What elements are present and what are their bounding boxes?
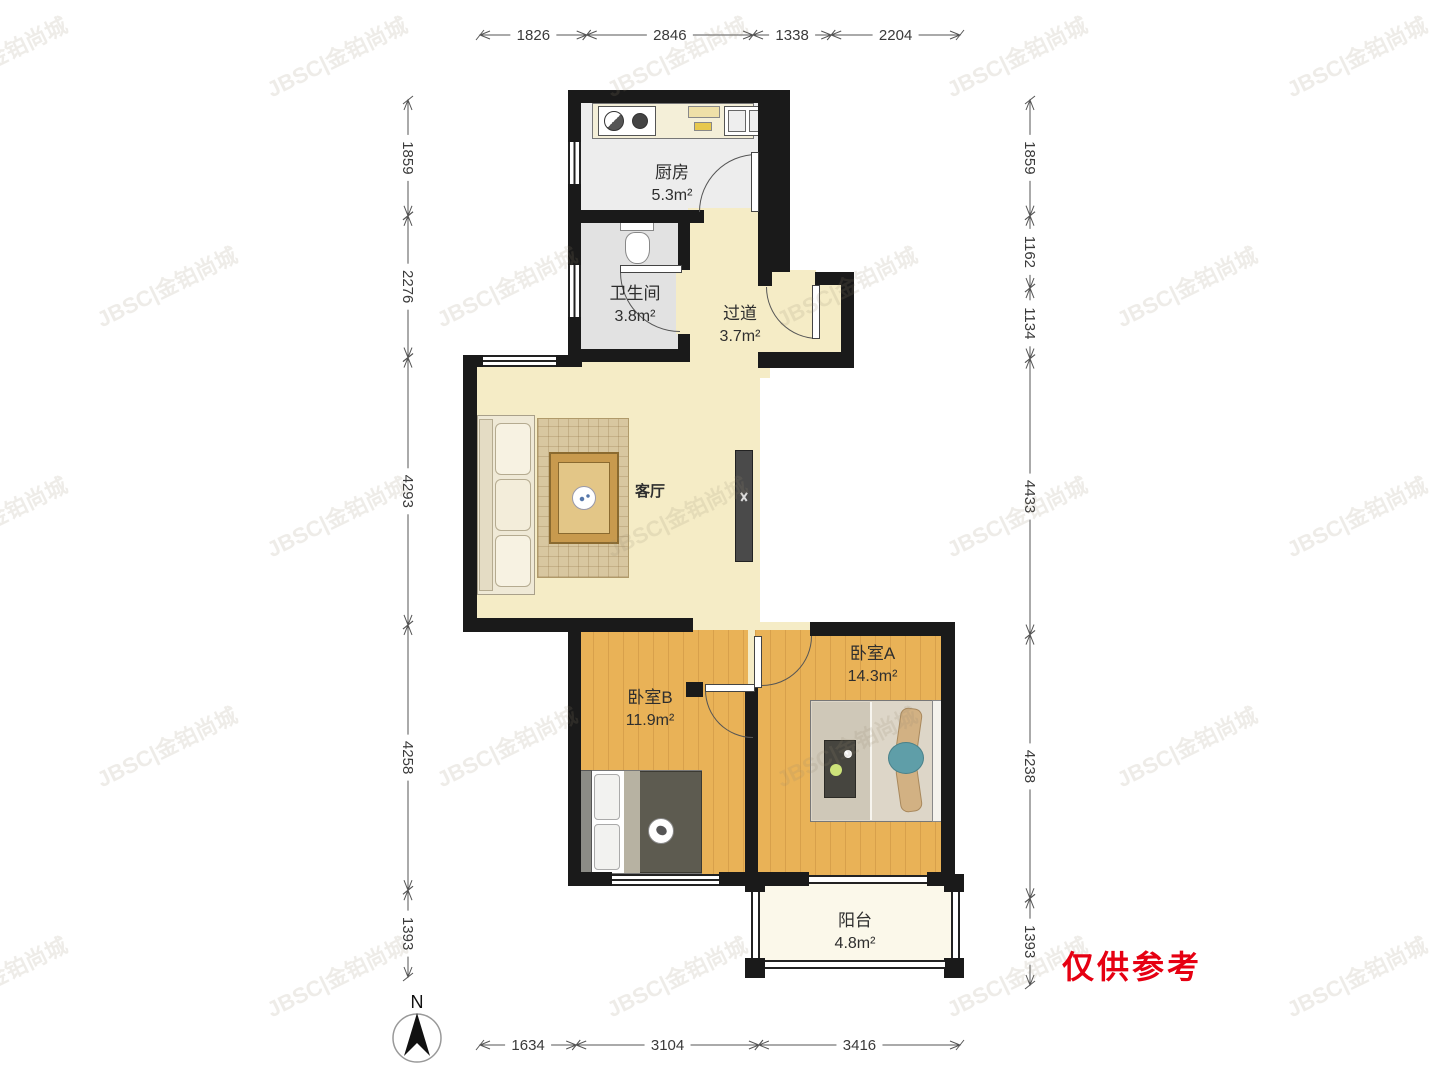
svg-text:1859: 1859: [399, 141, 416, 174]
wall: [568, 183, 581, 266]
watermark-text: JBSC|金铂尚城: [1111, 698, 1262, 794]
svg-text:1393: 1393: [1021, 925, 1038, 958]
kitchen-area: 5.3m²: [612, 185, 732, 207]
bedroom-a-area: 14.3m²: [810, 666, 935, 688]
bed-b-blanket-fold: [624, 771, 640, 873]
balcony-post: [745, 874, 765, 892]
svg-text:1826: 1826: [517, 27, 550, 44]
wall: [568, 632, 581, 886]
watermark-text: JBSC|金铂尚城: [261, 468, 412, 564]
room-label-bedroom-a: 卧室A 14.3m²: [810, 643, 935, 688]
room-label-living: 客厅: [600, 482, 700, 502]
bedroom-a-door-panel: [754, 636, 762, 688]
svg-text:2204: 2204: [879, 27, 912, 44]
watermark-text: JBSC|金铂尚城: [1281, 468, 1432, 564]
bathroom-name: 卫生间: [575, 283, 695, 306]
wall: [568, 872, 612, 886]
svg-text:3104: 3104: [651, 1037, 684, 1054]
svg-text:1393: 1393: [399, 917, 416, 950]
bathroom-door-panel: [620, 265, 682, 273]
bathroom-area: 3.8m²: [575, 306, 695, 328]
watermark-text: JBSC|金铂尚城: [0, 928, 72, 1024]
living-name: 客厅: [600, 482, 700, 502]
wall: [941, 622, 955, 886]
watermark-text: JBSC|金铂尚城: [941, 468, 1092, 564]
compass-north-arrow-icon: [404, 1013, 430, 1056]
watermark-text: JBSC|金铂尚城: [1281, 928, 1432, 1024]
pillow: [594, 774, 620, 820]
sofa-cushion: [495, 423, 531, 475]
kitchen-door-panel: [751, 152, 759, 212]
kitchen-name: 厨房: [612, 162, 732, 185]
svg-text:1859: 1859: [1021, 141, 1038, 174]
wall: [758, 90, 790, 272]
watermark-text: JBSC|金铂尚城: [91, 698, 242, 794]
compass-north-label: N: [411, 992, 424, 1012]
sofa-cushion: [495, 479, 531, 531]
wall: [568, 90, 581, 142]
svg-text:3416: 3416: [843, 1037, 876, 1054]
bedroom-a-name: 卧室A: [810, 643, 935, 666]
svg-text:4293: 4293: [399, 475, 416, 508]
wall: [810, 622, 955, 636]
room-label-bathroom: 卫生间 3.8m²: [575, 283, 695, 328]
hallway-name: 过道: [680, 303, 800, 326]
svg-text:4433: 4433: [1021, 480, 1038, 513]
entry-door-gap: [770, 270, 816, 288]
balcony-rail-right: [951, 892, 960, 958]
toilet-bowl: [625, 232, 650, 264]
room-label-hallway: 过道 3.7m²: [680, 303, 800, 348]
bedroom-b-area: 11.9m²: [590, 710, 710, 732]
watermark-text: JBSC|金铂尚城: [601, 928, 752, 1024]
living-room-window: [483, 355, 556, 367]
svg-text:4258: 4258: [399, 741, 416, 774]
balcony-name: 阳台: [795, 910, 915, 933]
sofa-cushion: [495, 535, 531, 587]
wall: [758, 352, 854, 368]
table-decor: [572, 486, 596, 510]
watermark-text: JBSC|金铂尚城: [0, 8, 72, 104]
floorplan-canvas: 厨房 5.3m² 卫生间 3.8m² 过道 3.7m² 客厅 卧室A 14.3m…: [0, 0, 1440, 1080]
wall: [568, 349, 690, 362]
watermark-text: JBSC|金铂尚城: [91, 238, 242, 334]
watermark-text: JBSC|金铂尚城: [261, 928, 412, 1024]
tv-unit: [735, 450, 753, 562]
bedroom-b-name: 卧室B: [590, 687, 710, 710]
wall: [568, 90, 790, 103]
watermark-text: JBSC|金铂尚城: [431, 698, 582, 794]
bedroom-b-door-panel: [705, 684, 755, 692]
svg-text:1162: 1162: [1021, 236, 1038, 268]
bed-a-tray-dot: [844, 750, 852, 758]
entry-door-panel: [812, 285, 820, 339]
watermark-text: JBSC|金铂尚城: [1281, 8, 1432, 104]
balcony-post: [745, 958, 765, 978]
sink-basin: [728, 110, 746, 132]
bedroom-b-window: [612, 874, 719, 886]
wall: [556, 355, 582, 367]
watermark-text: JBSC|金铂尚城: [431, 238, 582, 334]
balcony-post: [944, 874, 964, 892]
svg-text:2846: 2846: [653, 27, 686, 44]
bed-a-tray-dot: [830, 764, 842, 776]
bed-a-round-cushion: [888, 742, 924, 774]
watermark-text: JBSC|金铂尚城: [261, 8, 412, 104]
range-hood: [688, 106, 720, 118]
stove-burner-icon: [604, 111, 624, 131]
kitchen-window: [568, 142, 581, 184]
watermark-text: JBSC|金铂尚城: [0, 468, 72, 564]
wall: [463, 618, 693, 632]
bedroom-a-balcony-window: [809, 875, 927, 884]
wall: [678, 215, 690, 270]
balcony-area: 4.8m²: [795, 933, 915, 955]
wall: [758, 268, 772, 286]
balcony-rail-bottom: [765, 960, 945, 969]
stove-burner-icon: [632, 113, 648, 129]
compass-circle: [393, 1014, 441, 1062]
room-label-bedroom-b: 卧室B 11.9m²: [590, 687, 710, 732]
balcony-rail-left: [751, 892, 760, 958]
watermark-text: JBSC|金铂尚城: [941, 8, 1092, 104]
kitchen-appliance: [694, 122, 712, 131]
room-label-balcony: 阳台 4.8m²: [795, 910, 915, 955]
hallway-area: 3.7m²: [680, 326, 800, 348]
compass: N: [393, 992, 441, 1062]
wall: [463, 355, 477, 632]
svg-text:2276: 2276: [399, 270, 416, 303]
balcony-post: [944, 958, 964, 978]
disclaimer-text: 仅供参考: [1062, 942, 1202, 988]
room-label-kitchen: 厨房 5.3m²: [612, 162, 732, 207]
pillow: [594, 824, 620, 870]
svg-text:4238: 4238: [1021, 750, 1038, 783]
svg-text:1338: 1338: [775, 27, 808, 44]
sofa-backrest: [479, 419, 493, 591]
svg-text:1134: 1134: [1021, 307, 1038, 339]
watermark-text: JBSC|金铂尚城: [1111, 238, 1262, 334]
svg-text:1634: 1634: [511, 1037, 544, 1054]
